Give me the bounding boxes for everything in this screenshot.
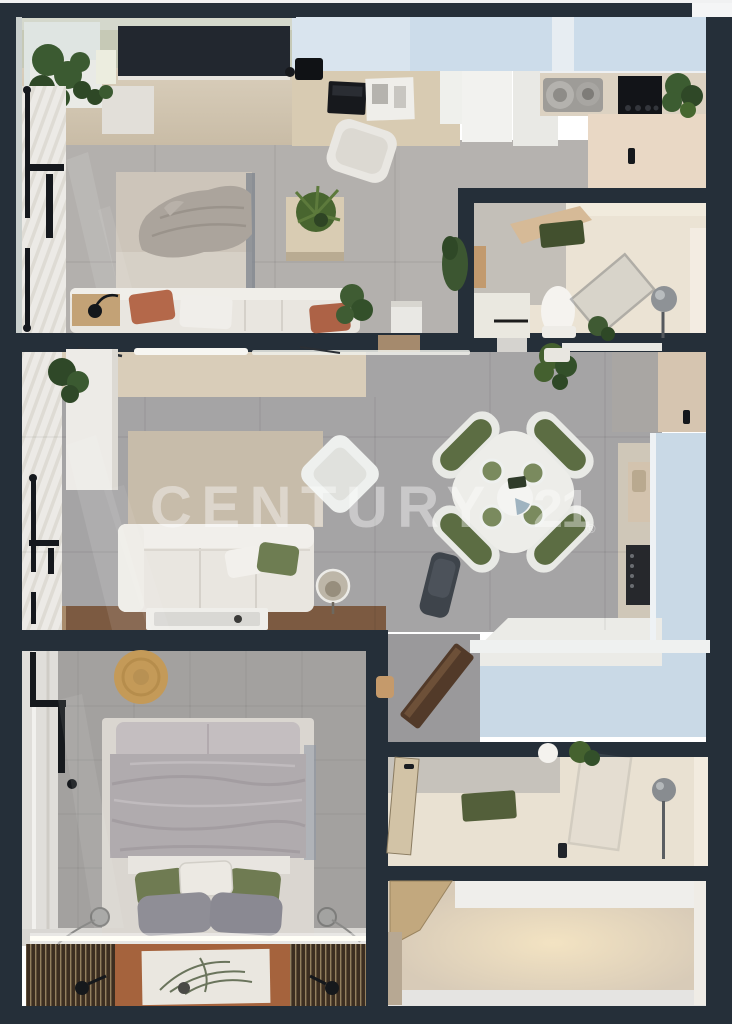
svg-text:CENTURY: CENTURY bbox=[150, 475, 495, 540]
svg-text:®: ® bbox=[586, 521, 596, 536]
svg-text:21: 21 bbox=[533, 479, 590, 539]
